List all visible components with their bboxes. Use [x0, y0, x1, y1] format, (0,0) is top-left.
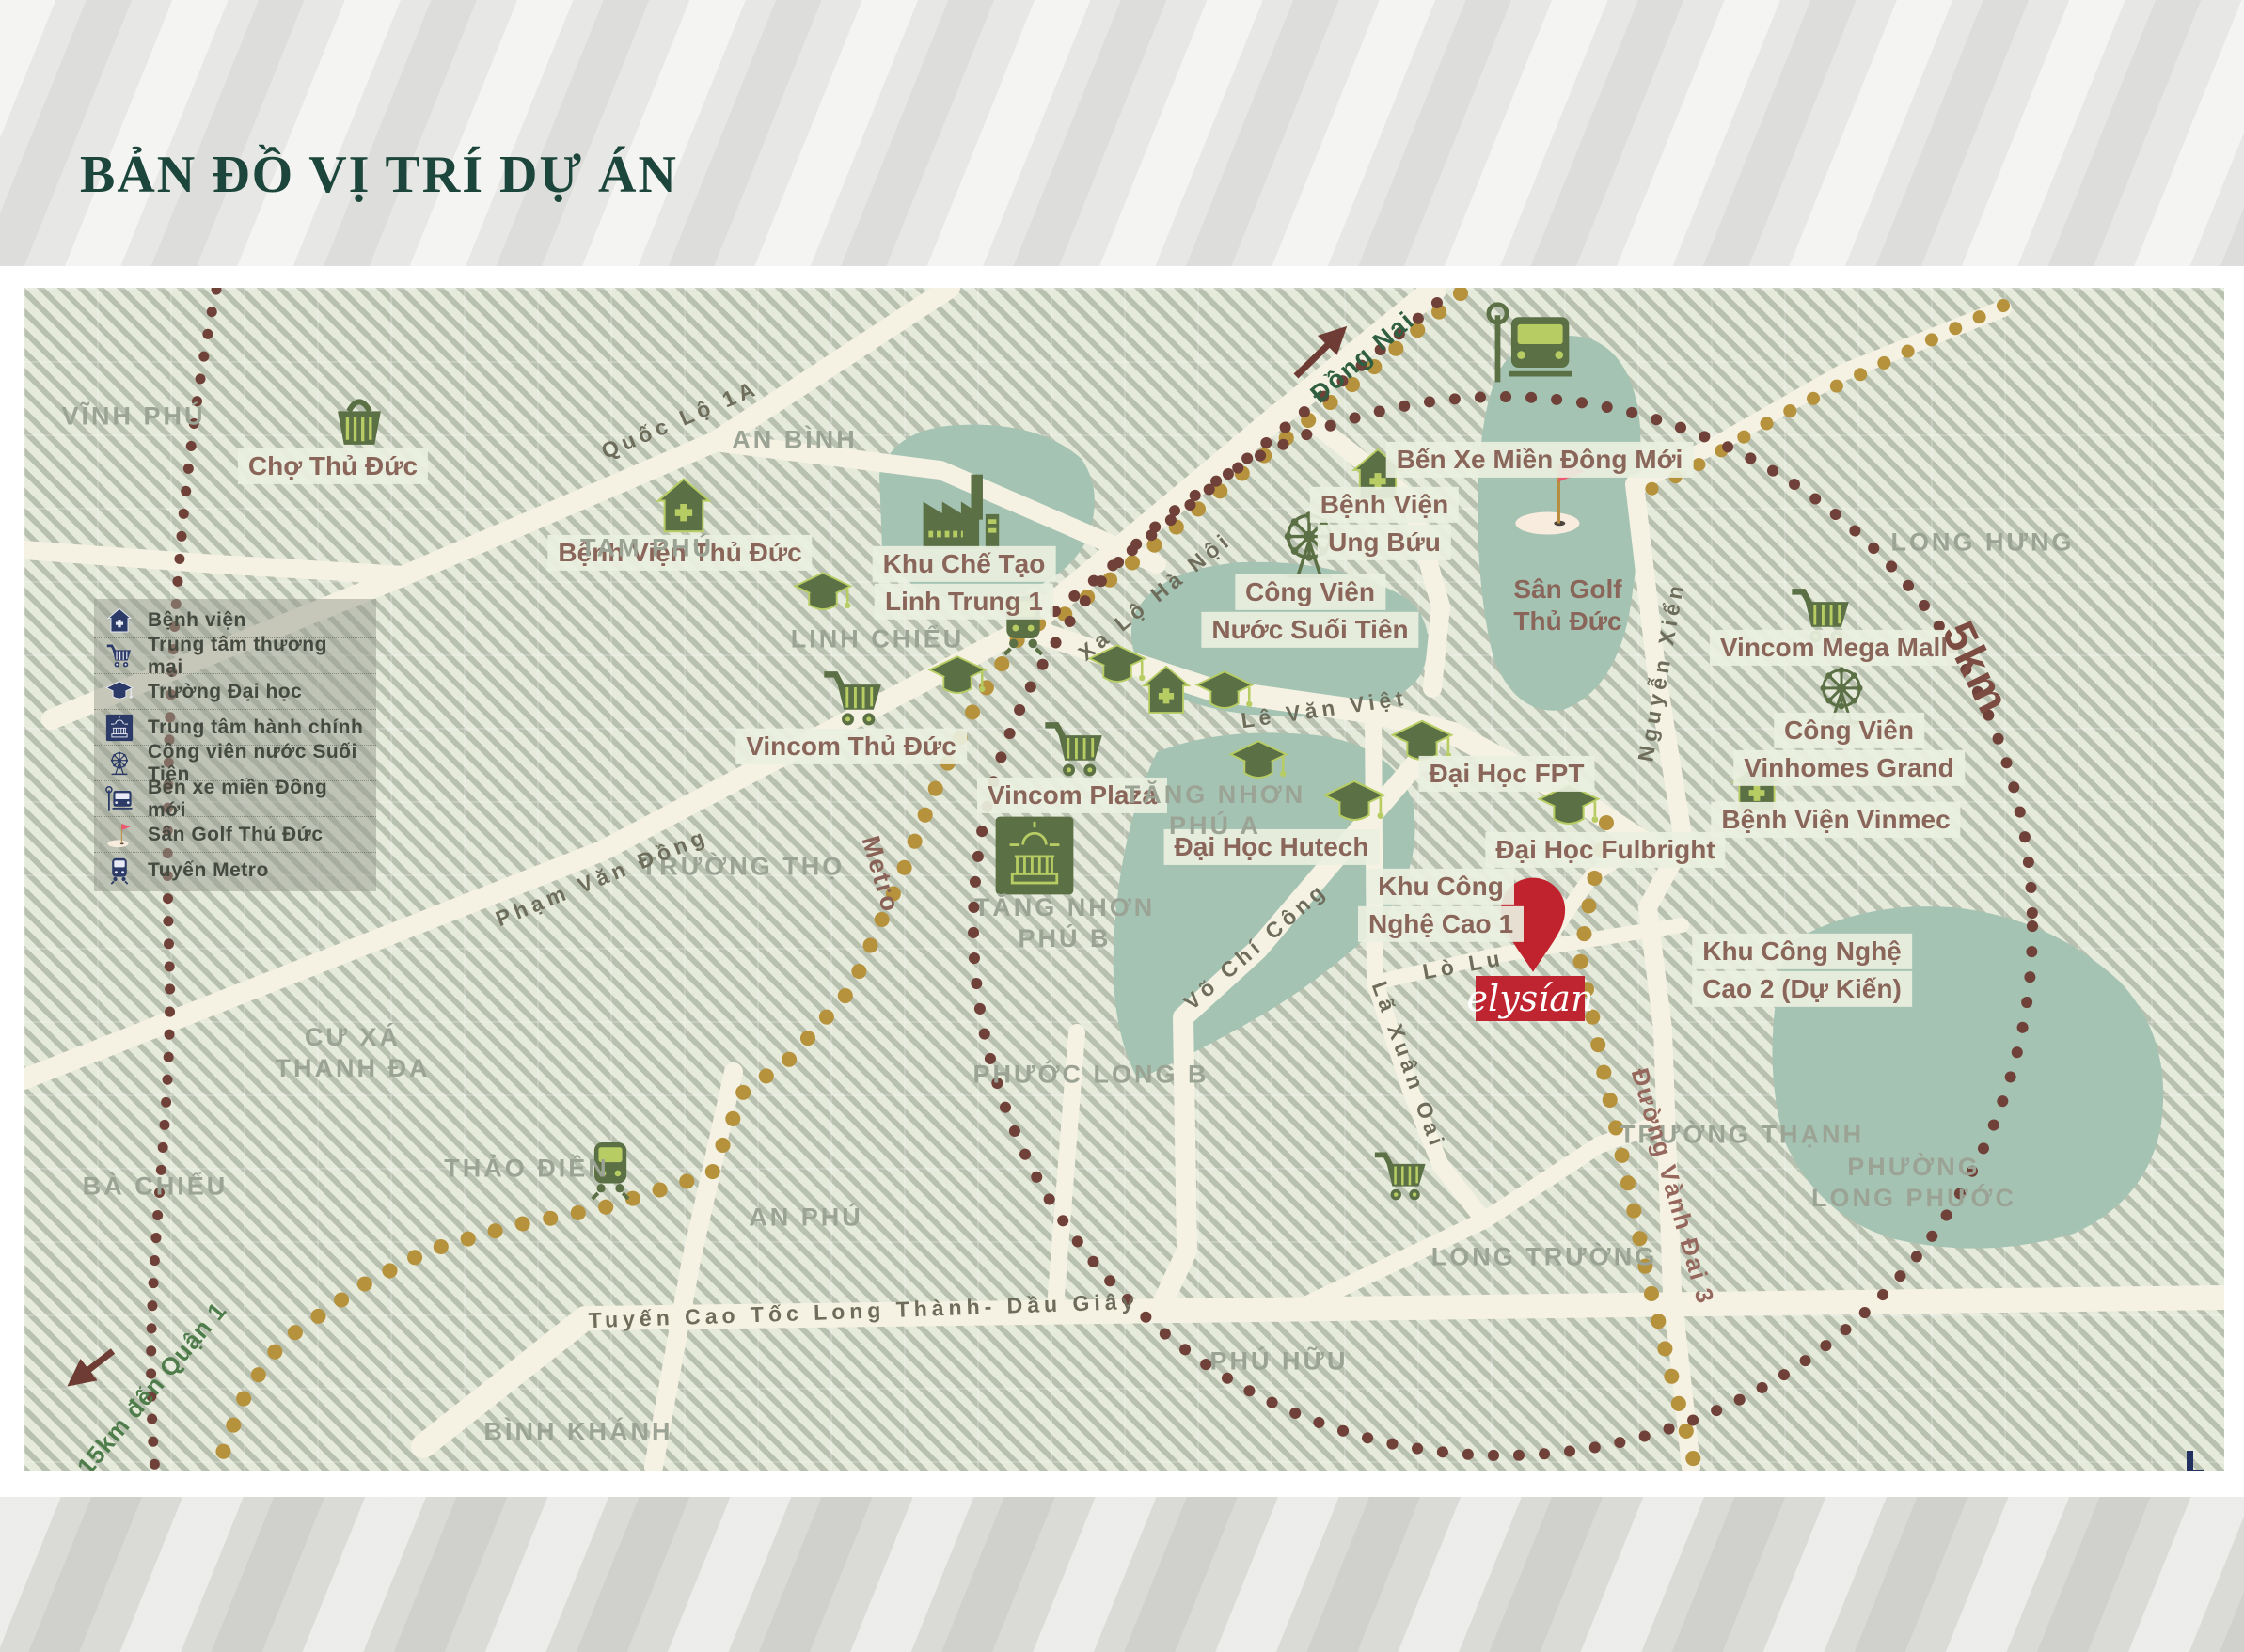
project-label-elysian: elysían	[1476, 976, 1585, 1021]
footer-band	[0, 1497, 2244, 1652]
area-label: LINH CHIỂU	[791, 624, 965, 655]
area-label: TĂNG NHƠNPHÚ A	[1125, 779, 1306, 842]
legend-item-label: Sân Golf Thủ Đức	[148, 824, 324, 846]
ferris-icon	[105, 749, 134, 778]
area-label: PHƯỜNGLONG PHƯỚC	[1811, 1152, 2016, 1214]
cart-icon	[105, 642, 134, 670]
legend-item-label: Trường Đại học	[148, 681, 302, 703]
page-title: BẢN ĐỒ VỊ TRÍ DỰ ÁN	[80, 145, 678, 205]
legend-item-label: Trung tâm thương mại	[148, 634, 365, 679]
poi-label: Sân GolfThủ Đức	[1513, 574, 1621, 637]
poi-label: Bệnh Viện Vinmec	[1711, 801, 1960, 839]
university-icon	[793, 565, 853, 630]
bus-station-icon	[1486, 299, 1576, 394]
area-label: PHƯỚC LONG B	[973, 1060, 1209, 1091]
legend-item-label: Bệnh viện	[148, 609, 246, 632]
busstop-icon	[105, 785, 134, 813]
legend-item: Sân Golf Thủ Đức	[94, 817, 376, 853]
poi-label: Khu Chế TạoLinh Trung 1	[873, 545, 1056, 621]
university-icon	[927, 649, 988, 714]
map-legend: Bệnh việnTrung tâm thương mạiTrường Đại …	[94, 599, 376, 891]
area-label: AN PHÚ	[749, 1203, 863, 1234]
poi-label: Vincom Mega Mall	[1710, 629, 1958, 667]
area-label: LONG HƯNG	[1891, 527, 2075, 559]
area-label: PHÚ HỮU	[1210, 1346, 1349, 1377]
hospital-icon	[105, 606, 134, 635]
area-label: AN BÌNH	[732, 425, 858, 456]
area-label: VĨNH PHÚ	[61, 401, 205, 433]
area-label: TĂNG NHƠNPHÚ B	[974, 892, 1156, 954]
poi-label: Chợ Thủ Đức	[238, 448, 428, 485]
area-label: CƯ XÁTHANH ĐA	[276, 1022, 431, 1084]
poi-label: Khu Công NghệCao 2 (Dự Kiến)	[1692, 933, 1912, 1008]
header-band	[0, 0, 2244, 266]
poi-label: Bệnh ViệnUng Bứu	[1310, 486, 1459, 561]
poi-label: Công ViênNước Suối Tiên	[1201, 574, 1418, 649]
legend-item: Trường Đại học	[94, 674, 376, 710]
legend-item: Tuyến Metro	[94, 853, 376, 888]
road	[24, 550, 404, 575]
poi-label: Bến Xe Miền Đông Mới	[1386, 441, 1694, 479]
hospital-icon	[1138, 662, 1194, 723]
cap-icon	[105, 678, 134, 706]
poi-label: Đại Học Fulbright	[1485, 831, 1725, 869]
area-label: THẢO ĐIỀN	[444, 1154, 609, 1185]
admin-icon	[105, 714, 134, 742]
legend-item: Bến xe miền Đông mới	[94, 781, 376, 817]
area-label: TAM PHÚ	[580, 533, 714, 564]
corner-mark	[2187, 1451, 2204, 1471]
mall-cart-icon	[1371, 1147, 1431, 1212]
poi-label: Công ViênVinhomes Grand	[1733, 712, 1965, 787]
admin-center-icon	[993, 814, 1076, 902]
area-label: BÀ CHIỂU	[83, 1172, 229, 1203]
train-icon	[105, 857, 134, 885]
golfflag-icon	[105, 821, 134, 849]
legend-item-label: Bến xe miền Đông mới	[148, 777, 365, 822]
poi-label: Đại Học FPT	[1419, 755, 1595, 793]
road	[654, 1072, 734, 1467]
area-label: BÌNH KHÁNH	[484, 1417, 673, 1448]
legend-item-label: Trung tâm hành chính	[148, 716, 363, 739]
district1-arrow	[71, 1351, 113, 1383]
area-label: LONG TRƯỜNG	[1431, 1242, 1657, 1273]
map-canvas: Chợ Thủ ĐứcBệnh Viện Thủ ĐứcKhu Chế TạoL…	[24, 288, 2224, 1471]
legend-item: Trung tâm thương mại	[94, 638, 376, 674]
legend-item-label: Tuyến Metro	[148, 859, 269, 882]
poi-label: Khu CôngNghệ Cao 1	[1358, 868, 1524, 943]
poi-label: Vincom Thủ Đức	[735, 728, 967, 765]
